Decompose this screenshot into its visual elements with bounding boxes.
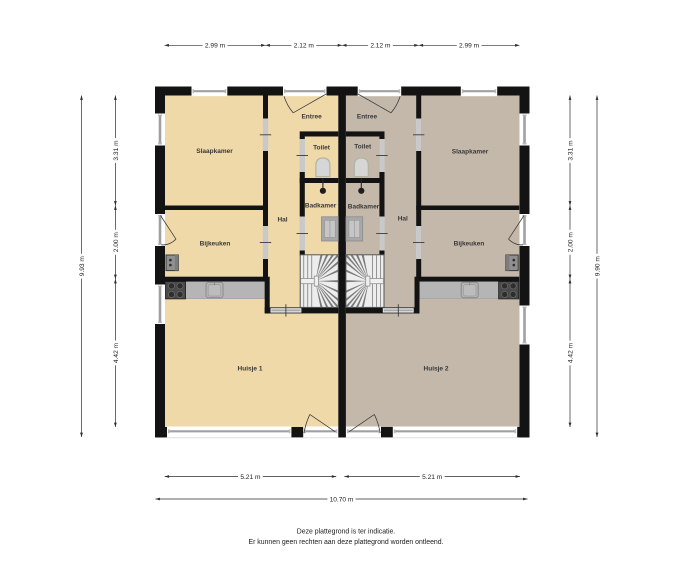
svg-text:2.00 m: 2.00 m bbox=[113, 232, 120, 253]
svg-text:5.21 m: 5.21 m bbox=[240, 474, 261, 481]
svg-text:3.31 m: 3.31 m bbox=[113, 140, 120, 161]
svg-text:10.70 m: 10.70 m bbox=[330, 496, 354, 503]
svg-text:Bijkeuken: Bijkeuken bbox=[454, 241, 485, 248]
svg-text:Slaapkamer: Slaapkamer bbox=[452, 149, 489, 156]
svg-text:Toilet: Toilet bbox=[354, 143, 372, 150]
svg-text:Entree: Entree bbox=[357, 114, 378, 121]
svg-text:4.42 m: 4.42 m bbox=[113, 342, 120, 363]
svg-text:Er kunnen geen rechten aan dez: Er kunnen geen rechten aan deze plattegr… bbox=[249, 539, 444, 546]
svg-text:5.21 m: 5.21 m bbox=[422, 474, 443, 481]
svg-text:Hal: Hal bbox=[277, 217, 287, 224]
svg-text:2.99 m: 2.99 m bbox=[459, 43, 480, 50]
svg-text:Huisje 1: Huisje 1 bbox=[238, 365, 263, 372]
svg-text:3.31 m: 3.31 m bbox=[567, 140, 574, 161]
svg-text:2.00 m: 2.00 m bbox=[567, 232, 574, 253]
svg-text:Slaapkamer: Slaapkamer bbox=[196, 148, 233, 155]
svg-text:9.90 m: 9.90 m bbox=[594, 256, 601, 277]
svg-text:Entree: Entree bbox=[301, 114, 322, 121]
svg-text:9.93 m: 9.93 m bbox=[79, 256, 86, 277]
svg-text:2.12 m: 2.12 m bbox=[294, 43, 315, 50]
svg-text:Bijkeuken: Bijkeuken bbox=[200, 241, 231, 248]
svg-text:Huisje 2: Huisje 2 bbox=[424, 365, 449, 372]
svg-text:Badkamer: Badkamer bbox=[348, 204, 380, 211]
svg-text:Badkamer: Badkamer bbox=[305, 203, 337, 210]
svg-text:2.12 m: 2.12 m bbox=[370, 43, 391, 50]
svg-text:Deze plattegrond is ter indica: Deze plattegrond is ter indicatie. bbox=[297, 528, 396, 535]
svg-text:2.99 m: 2.99 m bbox=[205, 43, 226, 50]
svg-text:4.42 m: 4.42 m bbox=[567, 342, 574, 363]
svg-text:Toilet: Toilet bbox=[313, 144, 331, 151]
svg-text:Hal: Hal bbox=[398, 216, 408, 223]
